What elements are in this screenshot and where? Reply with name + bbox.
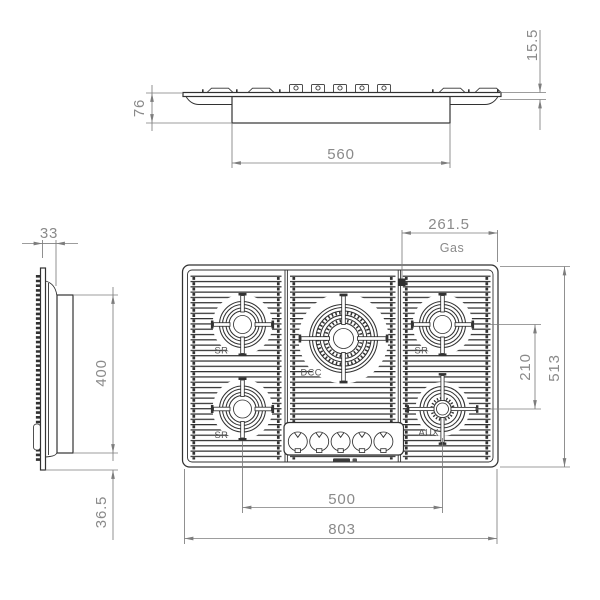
dim-cutout-width: 560 xyxy=(232,123,450,168)
left-flange-profile xyxy=(186,97,232,105)
side-elevation-view: 33 400 36.5 xyxy=(22,225,118,540)
knob-side-profile xyxy=(34,424,41,450)
svg-text:803: 803 xyxy=(328,521,355,538)
hob-top-plate-side xyxy=(41,268,46,470)
hob-top-plate-front xyxy=(183,93,501,97)
dim-profile-depth: 33 xyxy=(22,225,78,286)
plan-view: SR SR SR DCC AUX 261.5 Gas 210 513 xyxy=(183,216,571,544)
svg-text:33: 33 xyxy=(40,225,58,242)
top-flange-curve xyxy=(46,281,57,295)
right-flange-profile xyxy=(450,97,498,105)
svg-text:560: 560 xyxy=(327,146,354,163)
burner-box-side xyxy=(57,295,73,453)
bottom-flange-curve xyxy=(46,453,57,457)
dim-top-height: 15.5 xyxy=(500,29,546,130)
burner-label-top-right: SR xyxy=(415,346,429,356)
dim-cutout-depth: 400 xyxy=(73,287,118,461)
svg-text:210: 210 xyxy=(517,353,534,380)
burner-box-front xyxy=(232,97,450,124)
gas-connection-marker xyxy=(398,279,406,287)
gas-label: Gas xyxy=(440,241,464,255)
dim-gas-position: 261.5 Gas xyxy=(402,216,498,279)
burner-label-bottom-left: SR xyxy=(215,430,229,440)
brand-logo xyxy=(333,458,357,462)
svg-text:76: 76 xyxy=(131,99,148,117)
technical-drawing-canvas: 15.5 76 560 xyxy=(0,0,600,600)
knob-profiles xyxy=(290,85,391,93)
pan-support-profiles xyxy=(202,88,501,92)
svg-text:261.5: 261.5 xyxy=(428,216,470,233)
burner-label-center: DCC xyxy=(301,368,322,378)
svg-text:500: 500 xyxy=(328,491,355,508)
svg-text:513: 513 xyxy=(546,354,563,381)
dim-bottom-offset: 36.5 xyxy=(46,470,119,540)
front-elevation-view: 15.5 76 560 xyxy=(131,29,546,168)
svg-text:36.5: 36.5 xyxy=(93,496,110,528)
burner-label-bottom-right: AUX xyxy=(419,428,439,438)
svg-text:400: 400 xyxy=(93,359,110,386)
burner-label-top-left: SR xyxy=(215,346,229,356)
svg-text:15.5: 15.5 xyxy=(524,29,541,61)
